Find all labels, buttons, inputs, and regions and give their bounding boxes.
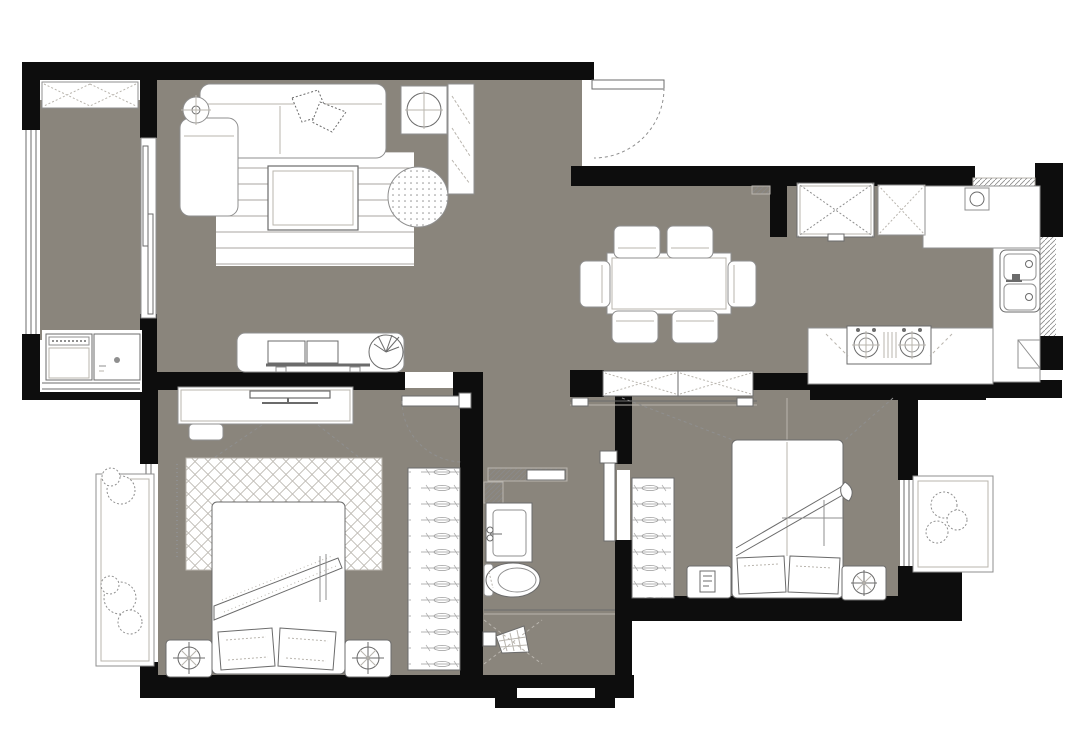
entry-vestibule xyxy=(582,80,664,166)
floorplan-page xyxy=(0,0,1080,756)
balcony-bottom-left xyxy=(96,468,154,666)
apartment-floor-plan xyxy=(0,0,1080,756)
balcony-right xyxy=(913,476,993,572)
